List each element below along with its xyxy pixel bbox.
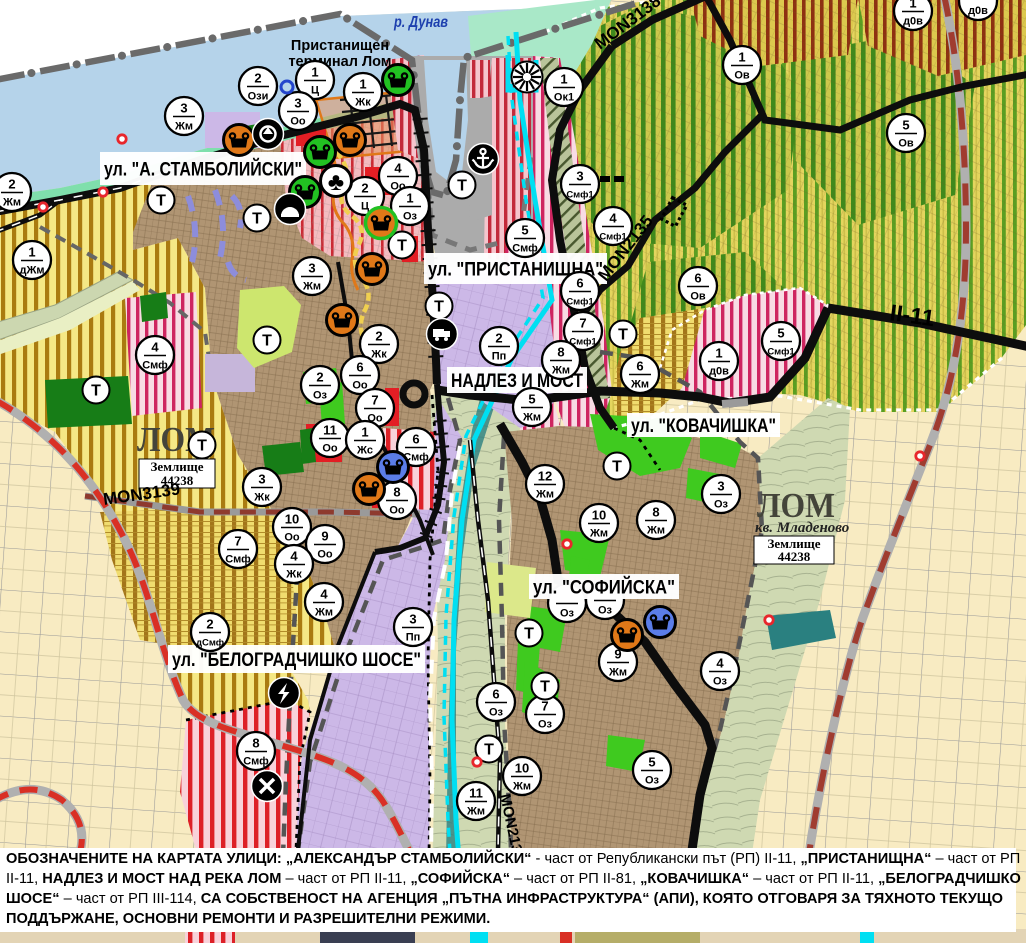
svg-text:д0в: д0в xyxy=(968,5,988,17)
svg-text:Т: Т xyxy=(197,438,207,455)
svg-text:Оо: Оо xyxy=(317,549,333,561)
svg-text:3: 3 xyxy=(294,96,301,111)
svg-text:8: 8 xyxy=(393,485,400,500)
svg-text:Смф1: Смф1 xyxy=(566,190,594,201)
svg-text:Т: Т xyxy=(397,238,407,255)
svg-text:Жм: Жм xyxy=(174,121,193,133)
svg-text:5: 5 xyxy=(528,392,535,407)
svg-text:ул. "А. СТАМБОЛИЙСКИ": ул. "А. СТАМБОЛИЙСКИ" xyxy=(104,158,302,180)
svg-text:Ов: Ов xyxy=(898,138,914,150)
svg-text:Жм: Жм xyxy=(302,281,321,293)
svg-text:Т: Т xyxy=(156,193,166,210)
svg-text:3: 3 xyxy=(258,472,265,487)
svg-text:6: 6 xyxy=(412,432,419,447)
svg-text:Жм: Жм xyxy=(630,379,649,391)
svg-text:4: 4 xyxy=(394,161,402,176)
svg-text:7: 7 xyxy=(579,316,586,331)
svg-text:р. Дунав: р. Дунав xyxy=(393,14,448,31)
svg-text:Оз: Оз xyxy=(313,390,328,402)
svg-text:12: 12 xyxy=(538,469,552,484)
svg-text:Т: Т xyxy=(618,327,628,344)
svg-text:10: 10 xyxy=(285,512,299,527)
svg-text:10: 10 xyxy=(592,508,606,523)
svg-text:Оз: Оз xyxy=(560,608,575,620)
svg-text:Жм: Жм xyxy=(608,667,627,679)
svg-text:Землище: Землище xyxy=(150,459,203,474)
svg-text:Т: Т xyxy=(540,679,550,696)
svg-text:1: 1 xyxy=(560,72,567,87)
svg-text:4: 4 xyxy=(290,549,298,564)
svg-text:д0в: д0в xyxy=(903,16,923,28)
svg-text:2: 2 xyxy=(206,617,213,632)
svg-text:ул. "СОФИЙСКА": ул. "СОФИЙСКА" xyxy=(533,576,675,598)
svg-text:4: 4 xyxy=(609,211,617,226)
svg-text:Жк: Жк xyxy=(285,569,302,581)
svg-text:Жм: Жм xyxy=(535,489,554,501)
svg-text:дСмф: дСмф xyxy=(196,638,224,649)
svg-text:44238: 44238 xyxy=(778,549,811,564)
svg-text:3: 3 xyxy=(717,479,724,494)
svg-text:Оз: Оз xyxy=(538,719,553,731)
svg-text:Жм: Жм xyxy=(589,528,608,540)
svg-text:6: 6 xyxy=(694,271,701,286)
svg-text:2: 2 xyxy=(375,329,382,344)
svg-text:1: 1 xyxy=(361,425,368,440)
svg-text:Жм: Жм xyxy=(646,525,665,537)
svg-text:5: 5 xyxy=(521,223,528,238)
svg-text:Т: Т xyxy=(457,178,467,195)
svg-text:Ози: Ози xyxy=(248,91,269,103)
svg-text:Оз: Оз xyxy=(598,605,613,617)
svg-text:Смф: Смф xyxy=(142,360,168,372)
svg-text:2: 2 xyxy=(8,177,15,192)
svg-text:8: 8 xyxy=(557,345,564,360)
svg-text:Жм: Жм xyxy=(522,412,541,424)
svg-text:Т: Т xyxy=(262,333,272,350)
svg-text:Пп: Пп xyxy=(406,632,421,644)
svg-text:9: 9 xyxy=(321,529,328,544)
svg-text:Оз: Оз xyxy=(403,211,418,223)
svg-text:8: 8 xyxy=(252,736,259,751)
svg-text:4: 4 xyxy=(320,587,328,602)
svg-text:Оо: Оо xyxy=(352,380,368,392)
svg-text:ул. "КОВАЧИШКА": ул. "КОВАЧИШКА" xyxy=(631,416,776,437)
svg-text:1: 1 xyxy=(28,245,35,260)
svg-text:11: 11 xyxy=(323,423,337,438)
svg-text:Т: Т xyxy=(252,211,262,228)
svg-text:1: 1 xyxy=(359,77,366,92)
svg-text:Оз: Оз xyxy=(713,676,728,688)
svg-text:11: 11 xyxy=(469,786,483,801)
svg-text:2: 2 xyxy=(254,71,261,86)
svg-text:ул. "БЕЛОГРАДЧИШКО ШОСЕ": ул. "БЕЛОГРАДЧИШКО ШОСЕ" xyxy=(172,650,421,671)
svg-text:Жм: Жм xyxy=(512,781,531,793)
svg-text:1: 1 xyxy=(738,50,745,65)
svg-text:5: 5 xyxy=(648,755,655,770)
svg-text:6: 6 xyxy=(576,276,583,291)
svg-text:6: 6 xyxy=(356,360,363,375)
svg-text:♣: ♣ xyxy=(328,168,344,196)
svg-text:6: 6 xyxy=(492,687,499,702)
svg-text:1: 1 xyxy=(311,65,318,80)
svg-text:Пристанищен: Пристанищен xyxy=(291,38,389,54)
svg-text:1: 1 xyxy=(406,191,413,206)
svg-text:Жк: Жк xyxy=(354,97,371,109)
svg-text:7: 7 xyxy=(371,393,378,408)
svg-text:д0в: д0в xyxy=(709,366,729,378)
svg-text:Ов: Ов xyxy=(690,291,706,303)
svg-text:Ц: Ц xyxy=(311,85,319,97)
svg-text:10: 10 xyxy=(515,761,529,776)
svg-text:1: 1 xyxy=(715,346,722,361)
svg-text:дЖм: дЖм xyxy=(19,265,44,277)
svg-text:Смф: Смф xyxy=(512,243,538,255)
svg-text:7: 7 xyxy=(541,699,548,714)
svg-text:4: 4 xyxy=(716,656,724,671)
svg-text:2: 2 xyxy=(495,331,502,346)
svg-text:Оз: Оз xyxy=(489,707,504,719)
svg-text:3: 3 xyxy=(180,101,187,116)
svg-text:Пп: Пп xyxy=(492,351,507,363)
svg-text:5: 5 xyxy=(777,326,784,341)
svg-text:Жс: Жс xyxy=(356,445,373,457)
svg-text:Оз: Оз xyxy=(645,775,660,787)
svg-text:Жм: Жм xyxy=(2,197,21,209)
svg-text:Смф: Смф xyxy=(243,756,269,768)
svg-text:Жк: Жк xyxy=(253,492,270,504)
svg-text:Ц: Ц xyxy=(361,201,369,213)
svg-text:Т: Т xyxy=(524,626,534,643)
svg-text:5: 5 xyxy=(902,118,909,133)
svg-text:Т: Т xyxy=(484,742,494,759)
svg-text:кв. Младеново: кв. Младеново xyxy=(755,520,849,536)
svg-text:Жм: Жм xyxy=(551,365,570,377)
svg-text:7: 7 xyxy=(234,534,241,549)
svg-text:3: 3 xyxy=(409,612,416,627)
svg-text:Оо: Оо xyxy=(290,116,306,128)
svg-text:Оз: Оз xyxy=(714,499,729,511)
svg-text:3: 3 xyxy=(576,169,583,184)
svg-text:Т: Т xyxy=(612,459,622,476)
svg-text:Смф1: Смф1 xyxy=(767,347,795,358)
svg-text:Жм: Жм xyxy=(314,607,333,619)
svg-text:Т: Т xyxy=(91,383,101,400)
svg-text:3: 3 xyxy=(308,261,315,276)
svg-text:Жм: Жм xyxy=(466,806,485,818)
svg-text:Смф1: Смф1 xyxy=(599,232,627,243)
svg-text:Жк: Жк xyxy=(370,349,387,361)
svg-text:Оо: Оо xyxy=(322,443,338,455)
svg-text:Ок1: Ок1 xyxy=(554,92,574,104)
svg-text:Т: Т xyxy=(434,299,444,316)
svg-text:4: 4 xyxy=(151,340,159,355)
svg-text:Смф1: Смф1 xyxy=(566,297,594,308)
svg-text:8: 8 xyxy=(652,505,659,520)
svg-text:1: 1 xyxy=(909,0,916,11)
svg-text:Оо: Оо xyxy=(284,532,300,544)
svg-text:Смф: Смф xyxy=(225,554,251,566)
svg-text:2: 2 xyxy=(316,370,323,385)
svg-text:6: 6 xyxy=(636,359,643,374)
svg-text:2: 2 xyxy=(361,181,368,196)
svg-text:Оо: Оо xyxy=(389,505,405,517)
svg-text:Ов: Ов xyxy=(734,70,750,82)
